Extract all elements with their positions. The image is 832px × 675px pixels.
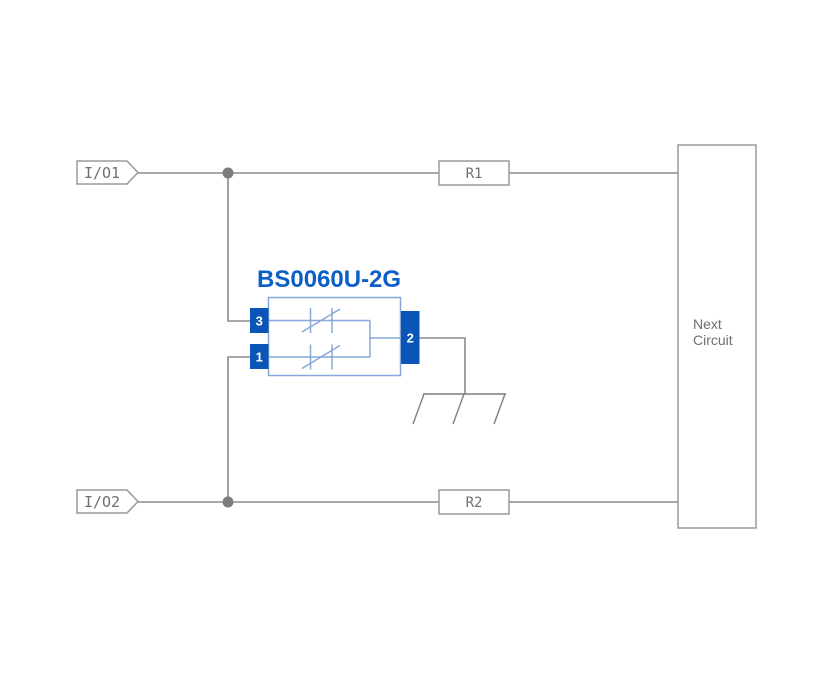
- pin-2: 2: [401, 311, 420, 364]
- ground-slash-middle: [453, 394, 464, 424]
- resistor-r1: R1: [439, 161, 509, 185]
- pin-1-number: 1: [256, 350, 263, 365]
- junction-dot-io2: [223, 497, 234, 508]
- pin-1: 1: [250, 344, 269, 369]
- component-title: BS0060U-2G: [257, 266, 401, 293]
- chassis-ground-icon: [413, 394, 506, 424]
- resistor-r2: R2: [439, 490, 509, 514]
- r2-label: R2: [466, 495, 483, 511]
- next-circuit-label-line1: Next: [693, 316, 722, 332]
- component-body: [269, 298, 401, 376]
- io2-tag: I/O2: [77, 490, 138, 513]
- pin-3: 3: [250, 308, 269, 333]
- pin-2-number: 2: [407, 331, 414, 346]
- io2-label: I/O2: [84, 493, 120, 511]
- pin-3-number: 3: [256, 314, 263, 329]
- ground-slash-right: [494, 394, 505, 424]
- next-circuit-label-line2: Circuit: [693, 332, 733, 348]
- io1-label: I/O1: [84, 164, 120, 182]
- wire-pin2-to-ground: [420, 338, 466, 394]
- wire-io2-branch-to-pin1: [228, 357, 250, 502]
- circuit-diagram: I/O1 I/O2 R1 R2 Next Circuit BS0060U-2G: [0, 0, 832, 675]
- ground-slash-left: [413, 394, 424, 424]
- next-circuit-block: Next Circuit: [678, 145, 756, 528]
- junction-dot-io1: [223, 168, 234, 179]
- esd-component: BS0060U-2G: [250, 266, 420, 376]
- io1-tag: I/O1: [77, 161, 138, 184]
- r1-label: R1: [466, 166, 483, 182]
- wire-io1-branch-to-pin3: [228, 173, 250, 321]
- schematic-page: I/O1 I/O2 R1 R2 Next Circuit BS0060U-2G: [0, 0, 832, 675]
